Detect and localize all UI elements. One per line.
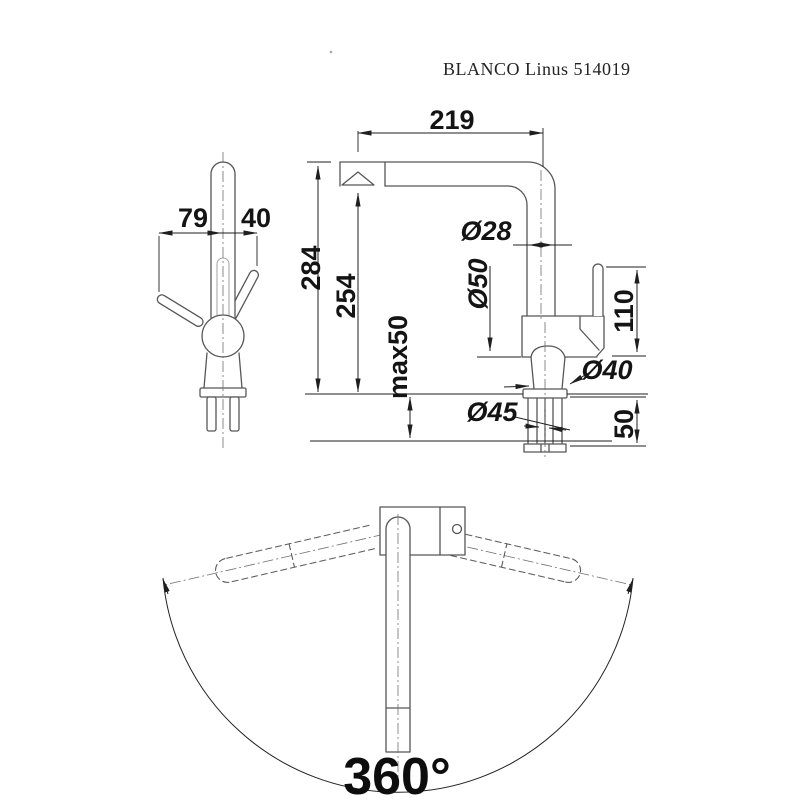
dim-label-o40: Ø40 bbox=[581, 355, 632, 385]
dim-label-o45: Ø45 bbox=[466, 397, 518, 427]
dim-label-360: 360° bbox=[343, 748, 451, 800]
dim-label-max50: max50 bbox=[383, 315, 413, 399]
side-stud-right bbox=[230, 397, 239, 431]
side-view: 79 40 bbox=[156, 152, 271, 448]
dim-reach: 219 bbox=[358, 105, 543, 167]
speck bbox=[330, 51, 333, 54]
technical-drawing: BLANCO Linus 514019 79 40 bbox=[0, 0, 800, 800]
outlet-cap bbox=[340, 162, 385, 186]
front-view: 219 284 254 max50 Ø28 Ø50 bbox=[296, 105, 648, 457]
dim-label-254: 254 bbox=[331, 273, 361, 318]
dim-label-79: 79 bbox=[178, 203, 208, 233]
bottom-view: 360° bbox=[160, 507, 635, 800]
drawing-title: BLANCO Linus 514019 bbox=[443, 59, 631, 79]
spout-inner-outline bbox=[385, 186, 527, 316]
dim-body-diameter: Ø50 bbox=[463, 258, 521, 357]
side-stud-left bbox=[207, 397, 216, 431]
dim-shank-length: 50 bbox=[570, 397, 646, 446]
dim-label-50: 50 bbox=[609, 409, 639, 439]
dim-label-219: 219 bbox=[429, 105, 474, 135]
dim-label-40: 40 bbox=[241, 203, 271, 233]
dim-counter-thickness: max50 bbox=[383, 315, 413, 438]
dim-height-spout: 254 bbox=[331, 193, 361, 392]
dim-label-284: 284 bbox=[296, 245, 326, 290]
dim-label-o50: Ø50 bbox=[463, 258, 493, 309]
dim-label-110: 110 bbox=[609, 289, 639, 333]
lever-forward bbox=[156, 293, 205, 328]
lever-rod bbox=[593, 264, 603, 316]
swivel-position-left bbox=[160, 522, 387, 596]
aerator-triangle bbox=[342, 172, 374, 185]
dim-shank-diameter: Ø45 bbox=[466, 397, 570, 430]
dim-lever-length: 110 bbox=[606, 267, 646, 356]
dim-height-total: 284 bbox=[296, 162, 331, 392]
lever-pivot-hole bbox=[453, 525, 462, 534]
dim-base-diameter: Ø40 bbox=[504, 355, 633, 387]
dim-label-o28: Ø28 bbox=[460, 216, 511, 246]
